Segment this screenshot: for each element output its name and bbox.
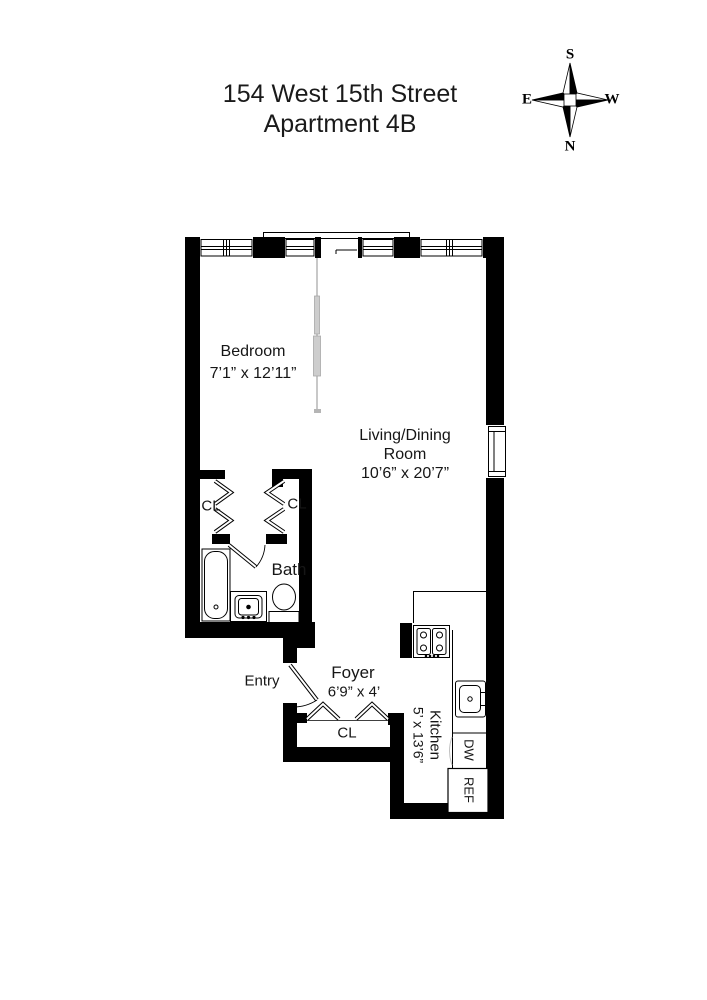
- bath-sink-icon: [231, 592, 267, 622]
- closet-left-label: CL: [201, 497, 220, 514]
- title-apartment: Apartment 4B: [264, 110, 417, 139]
- compass-letter-w: W: [605, 92, 620, 109]
- floor-plan-page: { "title": { "line1": "154 West 15th Str…: [0, 0, 707, 1000]
- closet-foyer-label: CL: [337, 724, 356, 741]
- entry-label: Entry: [244, 672, 279, 689]
- stove-icon: [414, 626, 450, 658]
- compass-rose-icon: [532, 63, 608, 137]
- window-icon-right: [484, 425, 506, 478]
- bedroom-dims: 7’1” x 12’11”: [210, 365, 297, 383]
- toilet-icon: [269, 584, 299, 623]
- partition-line: [314, 258, 322, 413]
- refrigerator-label: REF: [461, 777, 476, 803]
- bedroom-label: Bedroom: [221, 343, 286, 361]
- title-address: 154 West 15th Street: [223, 80, 457, 109]
- compass-letter-s: S: [566, 47, 574, 64]
- compass-letter-e: E: [522, 92, 532, 109]
- floor-plan-drawing: [0, 0, 707, 1000]
- compass-letter-n: N: [565, 139, 576, 156]
- entry-door-swing: [290, 665, 317, 707]
- living-room-label-1: Living/Dining: [359, 427, 451, 445]
- bath-door-swing: [229, 545, 265, 567]
- living-room-dims: 10’6” x 20’7”: [361, 465, 449, 483]
- dishwasher-label: DW: [461, 739, 476, 761]
- bath-label: Bath: [272, 560, 307, 580]
- kitchen-sink-icon: [456, 681, 486, 717]
- closet-right-label: CL: [287, 495, 306, 512]
- kitchen-label: Kitchen 5’ x 13’6”: [410, 707, 443, 763]
- window-icons-top: [201, 233, 482, 257]
- foyer-label: Foyer: [331, 663, 374, 683]
- kitchen-dims: 5’ x 13’6”: [410, 707, 426, 763]
- living-room-label-2: Room: [384, 446, 427, 464]
- kitchen-name: Kitchen: [426, 707, 443, 763]
- bathtub-icon: [202, 549, 230, 621]
- foyer-dims: 6’9” x 4’: [328, 683, 381, 700]
